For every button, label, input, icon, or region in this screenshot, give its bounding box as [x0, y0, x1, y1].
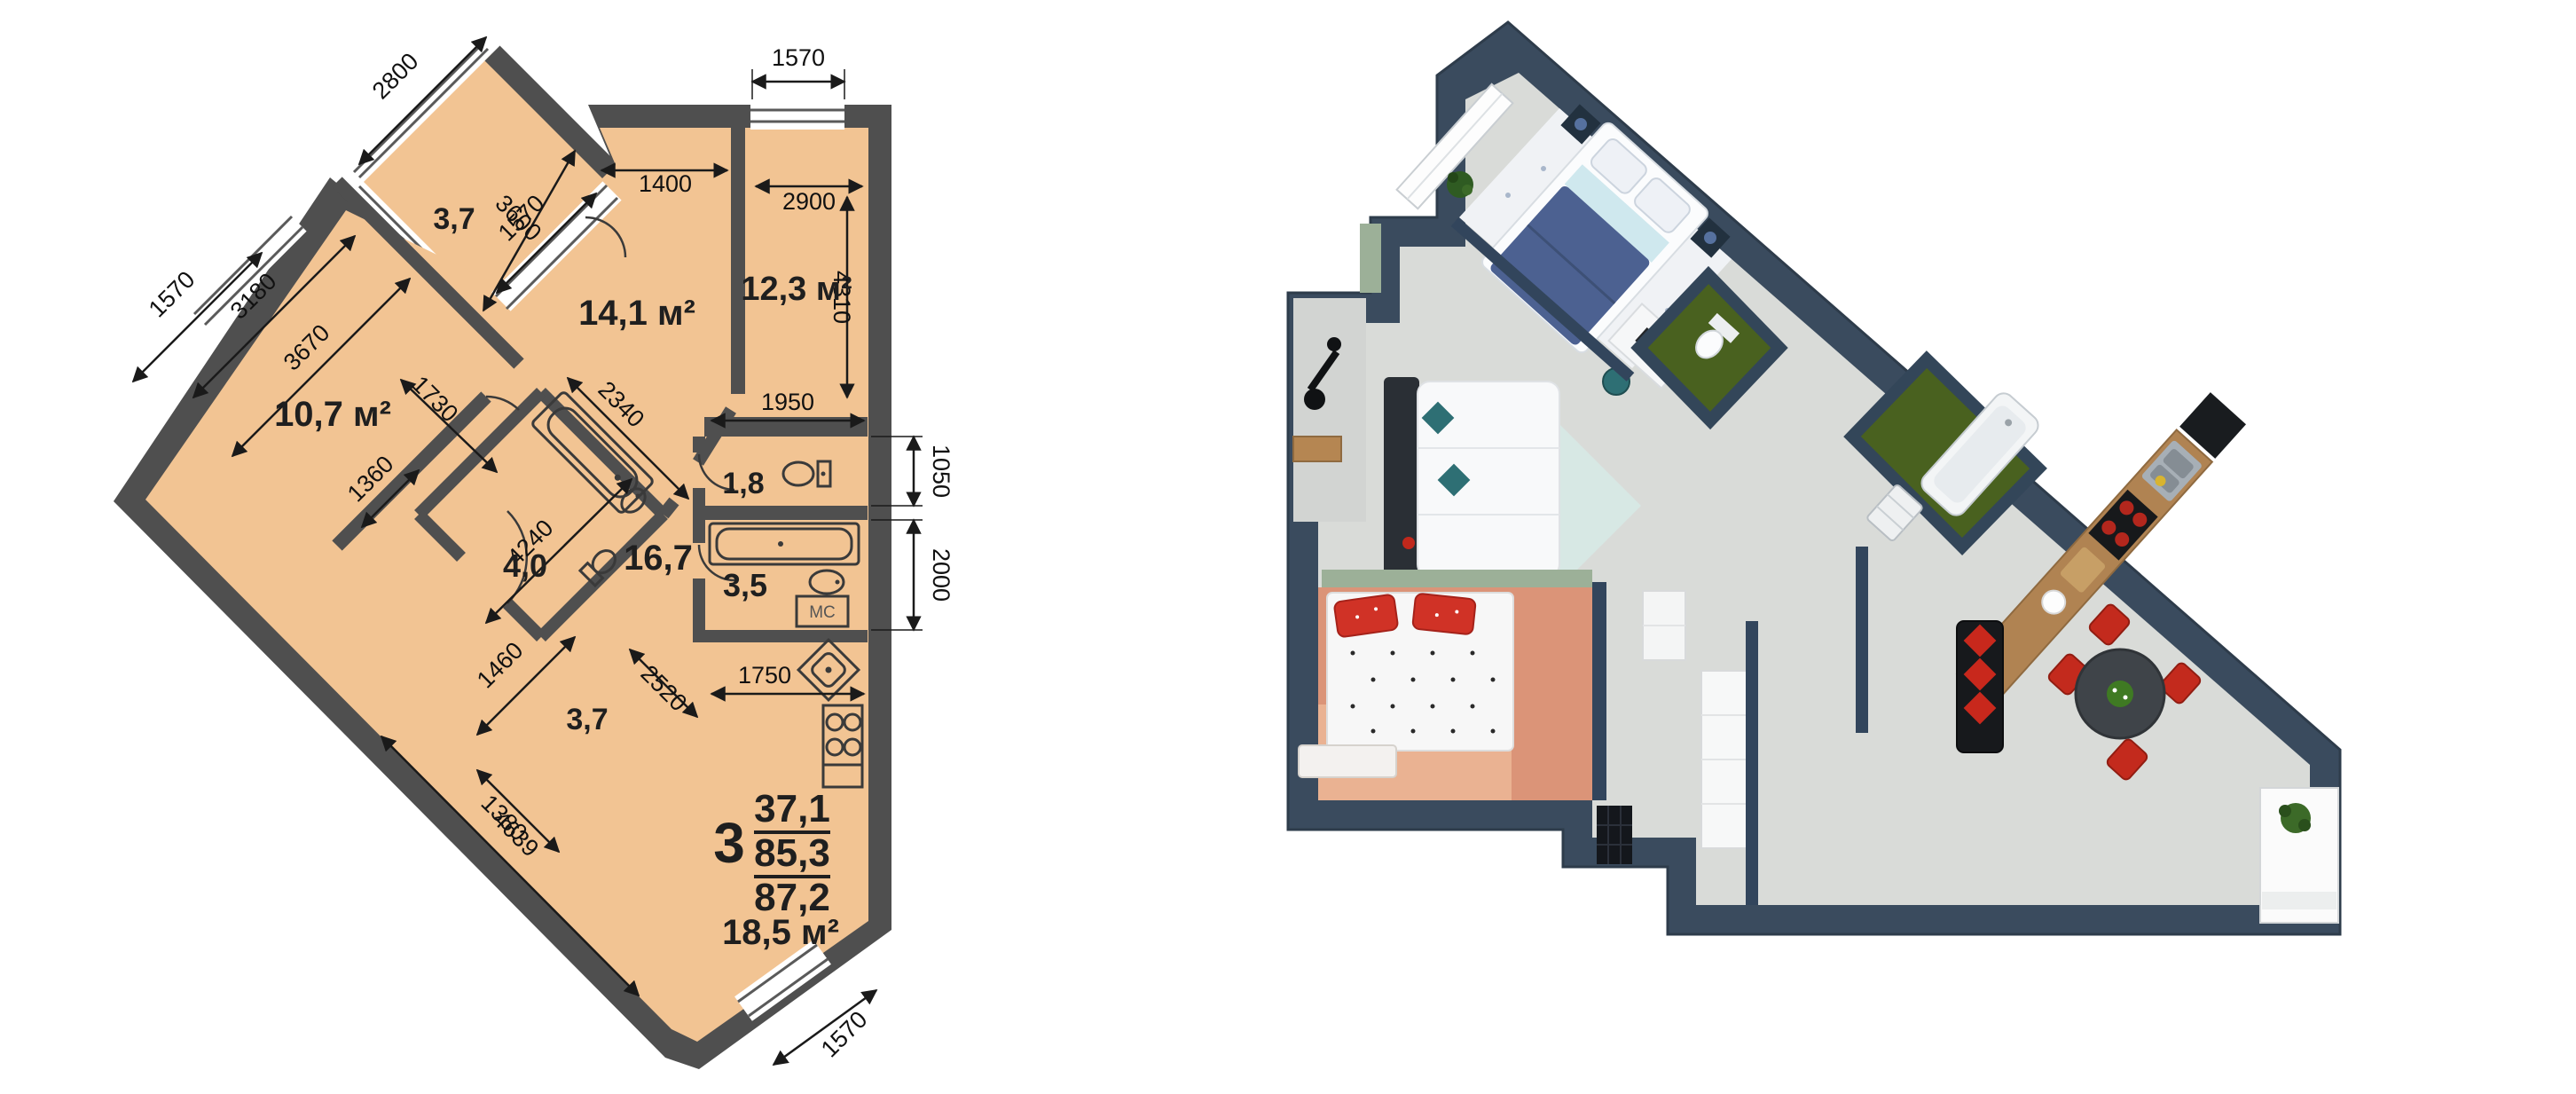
plant-leaf: [2279, 805, 2291, 817]
dot: [1391, 704, 1395, 709]
3d-sofa-table: [1384, 377, 1419, 577]
3d-black-sofa: [1957, 621, 2003, 752]
plant-fleck: [2124, 696, 2128, 700]
3d-sage-wall: [1360, 224, 1381, 293]
dot: [1351, 651, 1355, 656]
window-band: [750, 99, 844, 130]
plant-leaf: [2298, 819, 2311, 831]
wall: [1592, 582, 1606, 800]
pillow: [1412, 594, 1476, 635]
room-label-bathroom: 4,0: [503, 547, 547, 584]
wall: [704, 630, 868, 642]
dot: [1431, 704, 1435, 709]
lamp: [1575, 118, 1587, 130]
dim-label: 2800: [367, 48, 424, 105]
dot: [1351, 704, 1355, 709]
dim-label: 1570: [816, 1006, 873, 1063]
tap: [836, 580, 840, 585]
room-label-balcony-lower: 3,7: [566, 703, 608, 736]
bike-handle: [1327, 337, 1341, 351]
wall: [664, 501, 674, 515]
balcony-sill: [2262, 892, 2336, 909]
dot: [1471, 704, 1475, 709]
dim-label: 2000: [928, 548, 954, 602]
summary-total-area: 87,2: [754, 876, 830, 919]
plant-leaf: [1448, 172, 1458, 183]
wall: [731, 128, 745, 394]
dot: [1451, 678, 1456, 682]
dresser: [1299, 745, 1396, 777]
wall: [693, 488, 705, 543]
wall: [1746, 621, 1758, 905]
bench: [1293, 437, 1341, 461]
dot: [1491, 678, 1496, 682]
dot: [1371, 729, 1376, 734]
wall: [693, 578, 705, 642]
3d-balcony-bottom-right: [2260, 788, 2338, 923]
red-pillow: [1334, 594, 1399, 637]
summary-living-area: 37,1: [754, 787, 830, 830]
table-plant: [2107, 681, 2133, 707]
3d-bedroom-red: [1299, 587, 1592, 800]
dot: [1431, 651, 1435, 656]
floorplan-svg: МС: [0, 0, 2576, 1094]
pillow: [1334, 594, 1399, 637]
floorplan-page: МС: [0, 0, 2576, 1094]
balcony-floor: [1293, 298, 1366, 522]
wall: [704, 506, 868, 520]
dim-label: 1050: [928, 445, 954, 498]
lamp: [1704, 232, 1716, 244]
plan-2d: МС: [114, 37, 954, 1069]
room-label-bedroom2: 12,3 м²: [741, 271, 852, 308]
3d-balcony-bike: [1293, 298, 1366, 522]
dim-label: 1950: [761, 389, 814, 415]
room-label-bedroom1: 14,1 м²: [578, 294, 695, 333]
room-label-bathroom2: 3,5: [723, 567, 767, 603]
plant-leaf: [1462, 185, 1473, 195]
dot: [1451, 729, 1456, 734]
dot: [1371, 678, 1376, 682]
3d-sage-wall: [1322, 570, 1592, 587]
room-label-balcony-top: 3,7: [433, 202, 475, 236]
dim-label: 2900: [782, 188, 836, 215]
dim-label: 1750: [738, 662, 791, 689]
plan-3d: [1288, 22, 2340, 934]
dot: [1391, 651, 1395, 656]
room-label-hall: 16,7: [624, 539, 693, 578]
plant-fleck: [2113, 689, 2117, 693]
dot: [1491, 729, 1496, 734]
3d-entry-mat: [1597, 806, 1632, 864]
dot: [1411, 729, 1416, 734]
flowers-icon: [1402, 537, 1415, 549]
window-bedroom2: [750, 99, 844, 130]
room-label-bedroom3: 10,7 м²: [274, 395, 391, 434]
flush: [821, 472, 826, 476]
red-pillow: [1412, 594, 1476, 635]
dot: [1411, 678, 1416, 682]
summary-rooms-count: 3: [713, 811, 745, 875]
dim-label: 1570: [144, 266, 200, 323]
washing-machine-label: МС: [809, 603, 836, 622]
dot: [1541, 166, 1546, 171]
dim-label: 1570: [772, 44, 825, 71]
dot: [1471, 651, 1475, 656]
bike-wheel: [1304, 389, 1325, 410]
dot: [1505, 193, 1511, 198]
mat: [1597, 806, 1632, 864]
wall: [1856, 547, 1868, 733]
dim-label: 1400: [639, 170, 692, 197]
drain: [778, 541, 783, 547]
summary-usable-area: 85,3: [754, 831, 830, 875]
room-label-wc: 1,8: [722, 467, 764, 500]
